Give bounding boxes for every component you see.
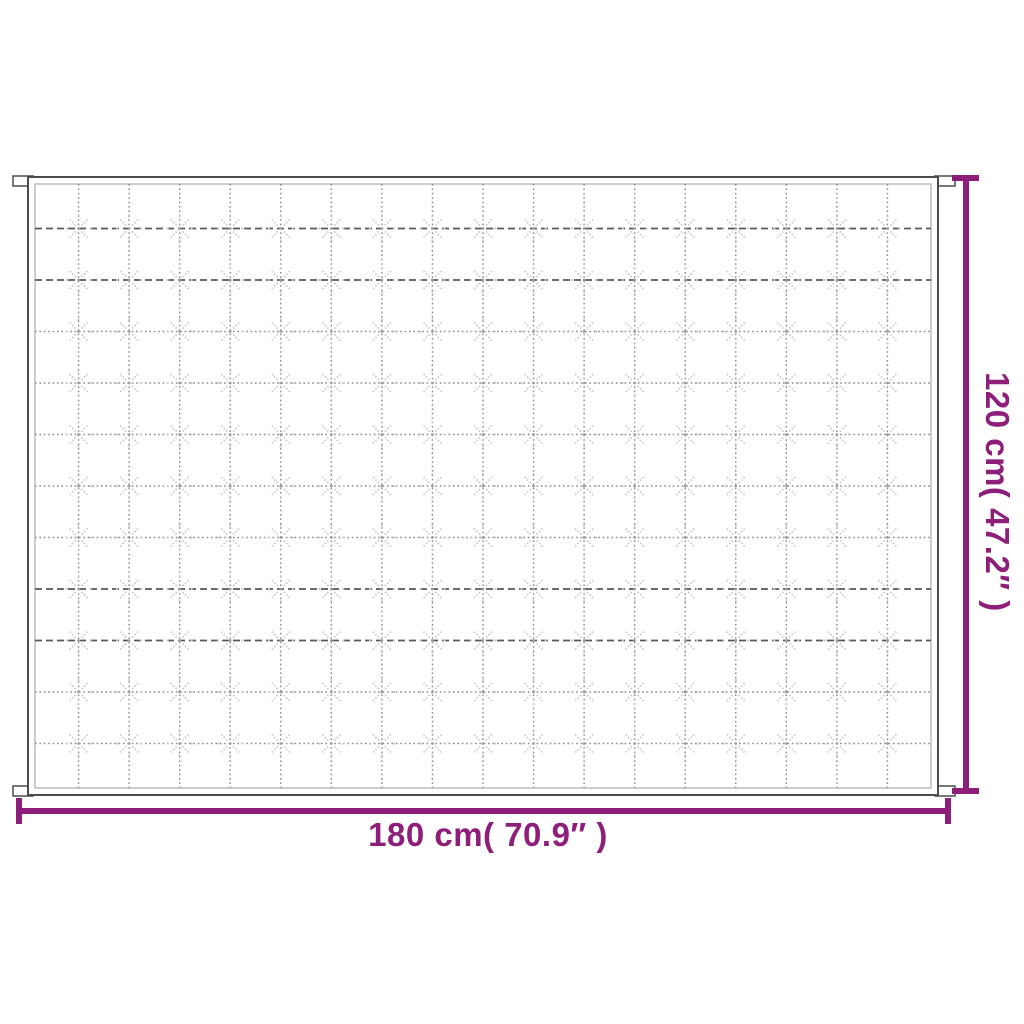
width-dimension-cap-left [16,798,22,824]
height-dimension-cap-top [952,175,979,181]
width-dimension-label: 180 cm( 70.9″ ) [244,818,732,851]
height-dimension-line [963,176,969,792]
width-dimension-cap-right [945,798,951,824]
product-dimension-diagram: 180 cm( 70.9″ ) 120 cm( 47.2″ ) [0,0,1024,1024]
width-dimension-line [19,808,948,814]
height-dimension-label: 120 cm( 47.2″ ) [981,372,1014,612]
blanket-illustration [0,0,1024,1024]
height-dimension-cap-bottom [952,788,979,794]
